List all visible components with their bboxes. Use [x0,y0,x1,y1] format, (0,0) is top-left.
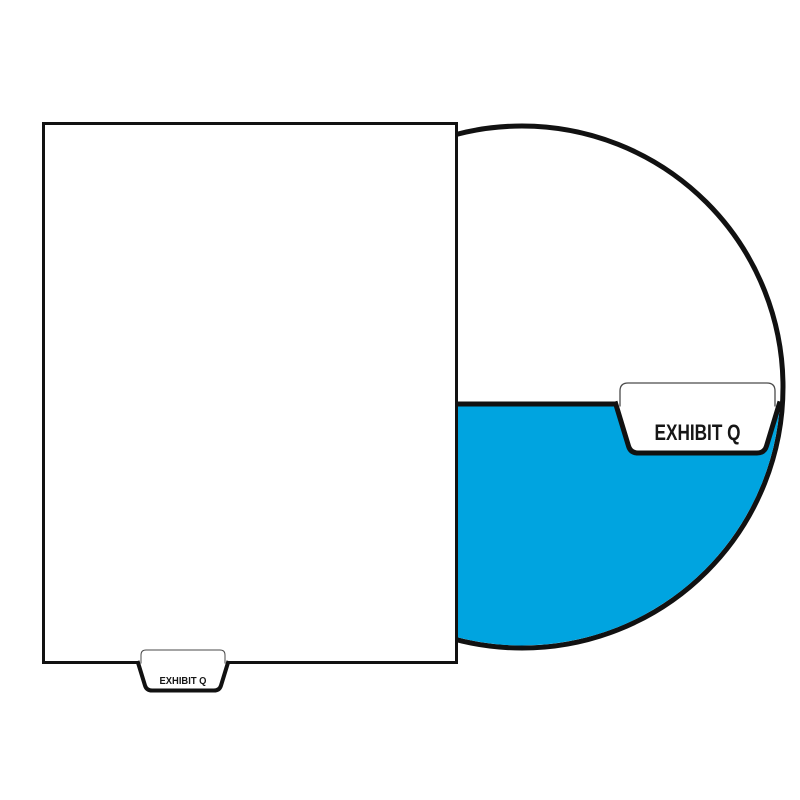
sheet-tab-label: EXHIBIT Q [160,675,207,687]
sheet-bottom-tab: EXHIBIT Q [138,650,229,691]
sheet [44,124,457,663]
magnified-tab-upper-outline [620,383,775,407]
product-illustration: EXHIBIT Q EXHIBIT Q [0,0,800,800]
magnified-tab-label: EXHIBIT Q [655,420,741,445]
sheet-tab-upper-outline [141,650,225,664]
magnified-tab: EXHIBIT Q [615,383,780,453]
divider-illustration-canvas: EXHIBIT Q EXHIBIT Q [0,0,800,800]
